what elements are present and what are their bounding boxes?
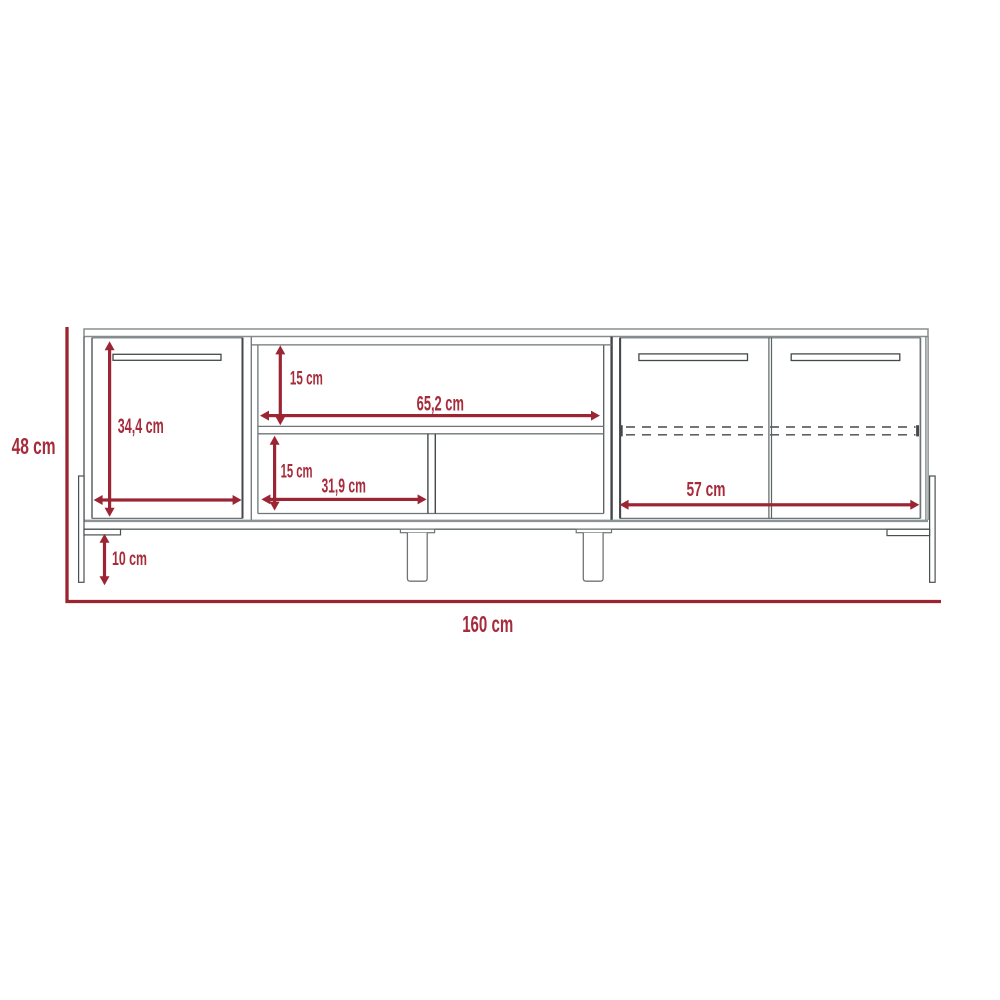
svg-text:160 cm: 160 cm <box>462 611 513 637</box>
svg-text:15 cm: 15 cm <box>290 368 323 390</box>
svg-text:65,2 cm: 65,2 cm <box>417 392 464 415</box>
svg-text:48 cm: 48 cm <box>12 433 56 459</box>
svg-text:34,4 cm: 34,4 cm <box>118 414 164 438</box>
svg-text:57 cm: 57 cm <box>687 478 726 501</box>
svg-text:31,9 cm: 31,9 cm <box>321 476 366 498</box>
svg-text:10 cm: 10 cm <box>112 548 147 570</box>
svg-text:15 cm: 15 cm <box>281 460 313 482</box>
